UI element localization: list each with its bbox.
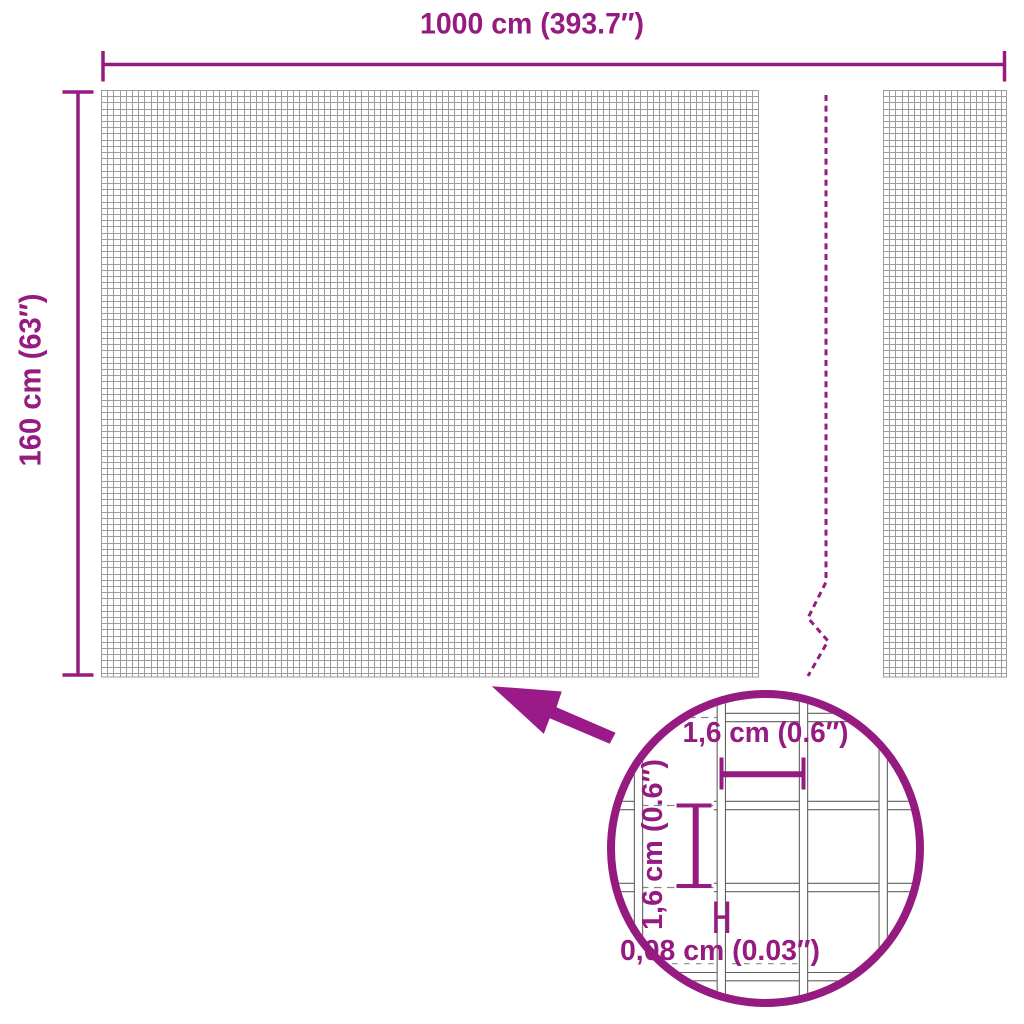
svg-text:1,6 cm (0.6″): 1,6 cm (0.6″) (683, 717, 849, 749)
svg-text:1,6 cm (0.6″): 1,6 cm (0.6″) (637, 759, 669, 930)
svg-text:160 cm (63″): 160 cm (63″) (14, 294, 48, 467)
svg-text:1000 cm (393.7″): 1000 cm (393.7″) (420, 8, 644, 41)
svg-text:0,08 cm (0.03″): 0,08 cm (0.03″) (620, 935, 820, 967)
